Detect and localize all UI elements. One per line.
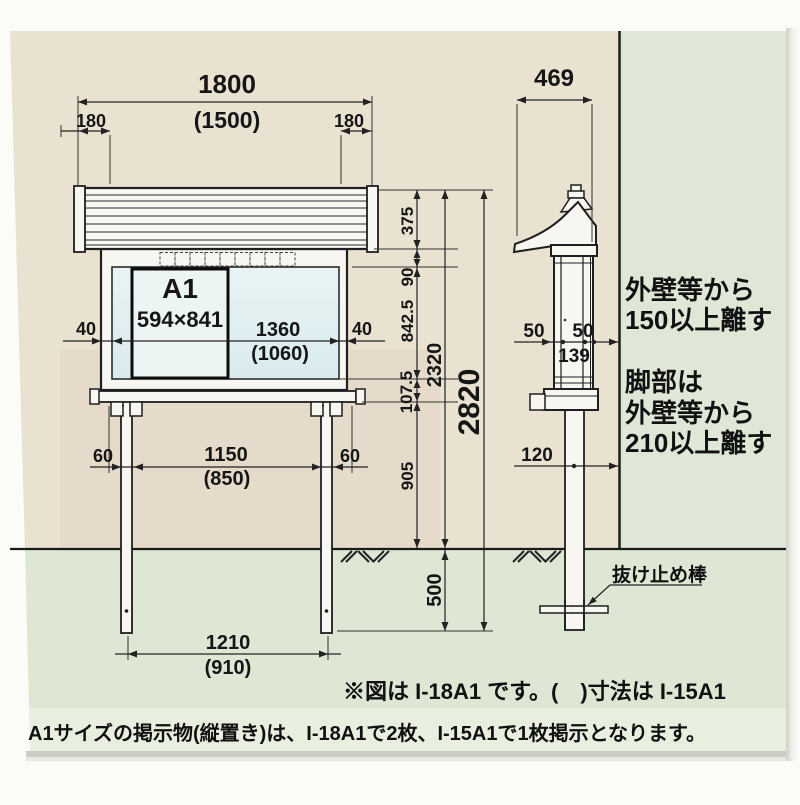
page-bottom-shadow	[26, 751, 788, 758]
post-height-label: 905	[398, 462, 417, 490]
front-right-leg	[321, 400, 332, 633]
overhang-left-label: 180	[76, 111, 106, 131]
scan-edge	[786, 28, 800, 761]
frame-left-label: 40	[76, 319, 96, 339]
leg-bracket	[330, 402, 342, 416]
above-ground-height-label: 2320	[424, 343, 446, 388]
right-anchor-hole	[325, 609, 329, 613]
model-note: ※図は I-18A1 です。( )寸法は I-15A1	[343, 679, 726, 704]
catalog-scan-page: A1 594×841	[0, 0, 800, 800]
depth-label: 469	[534, 65, 574, 92]
bracket-bolt	[122, 405, 124, 407]
wall-clearance-note: 外壁等から 150以上離す	[625, 275, 772, 335]
leg-bracket	[111, 402, 123, 416]
opening-height-label: 842.5	[398, 300, 417, 343]
buried-depth-label: 500	[424, 573, 446, 606]
bracket-bolt	[322, 405, 324, 407]
roof-width-label: 1800	[198, 69, 256, 99]
leg-bracket	[130, 402, 142, 416]
leg-clearance-line1: 脚部は	[625, 367, 703, 397]
roof-cap-bar	[551, 245, 597, 256]
rail-end-left	[90, 389, 99, 404]
bottom-frame-height-label: 107.5	[397, 371, 416, 414]
roof-finial-base	[568, 191, 584, 198]
back-offset-label: 50	[572, 321, 593, 342]
top-frame-height-label: 90	[398, 268, 417, 287]
body-bolt	[564, 319, 567, 322]
leg-bracket	[311, 402, 323, 416]
bottom-rail	[97, 391, 356, 402]
capacity-note: A1サイズの掲示物(縦置き)は、I-18A1で2枚、I-15A1で1枚掲示となり…	[28, 721, 706, 745]
post-depth-label: 120	[521, 445, 553, 466]
side-bracket-block	[530, 394, 545, 410]
opening-width-label: 1360	[256, 319, 301, 341]
stopper-label: 抜け止め棒	[612, 563, 708, 586]
roof-height-label: 375	[398, 207, 417, 235]
wall-clearance-line1: 外壁等から	[625, 275, 755, 305]
roof-width-sub-label: (1500)	[194, 107, 260, 133]
side-post	[565, 410, 584, 630]
bulletin-board-dimension-drawing: A1 594×841	[0, 0, 800, 800]
wall-clearance-line2: 150以上離す	[625, 305, 772, 335]
post-span-label: 1150	[204, 444, 247, 466]
post-width-right-label: 60	[340, 446, 360, 466]
body-depth-label: 139	[558, 346, 590, 367]
roof-end-cap-right	[367, 186, 378, 252]
roof-end-cap-left	[74, 186, 85, 252]
leg-clearance-line2: 外壁等から	[625, 398, 755, 428]
frame-right-label: 40	[352, 319, 372, 339]
front-offset-label: 50	[523, 321, 544, 342]
overhang-right-label: 180	[334, 111, 364, 131]
anchor-span-label: 1210	[206, 632, 251, 654]
front-left-leg	[121, 400, 132, 633]
a1-sheet-title: A1	[162, 273, 198, 304]
left-anchor-hole	[125, 609, 129, 613]
page-bottom-shadow-fade	[26, 757, 788, 761]
a1-sheet-size: 594×841	[137, 307, 223, 332]
post-width-left-label: 60	[93, 446, 113, 466]
post-span-sub-label: (850)	[204, 468, 251, 490]
total-height-label: 2820	[453, 369, 486, 436]
side-bracket	[544, 389, 598, 410]
leg-clearance-line3: 210以上離す	[625, 428, 772, 458]
anchor-span-sub-label: (910)	[205, 657, 252, 679]
opening-width-sub-label: (1060)	[251, 343, 309, 365]
stopper-bar-hidden	[566, 607, 583, 612]
